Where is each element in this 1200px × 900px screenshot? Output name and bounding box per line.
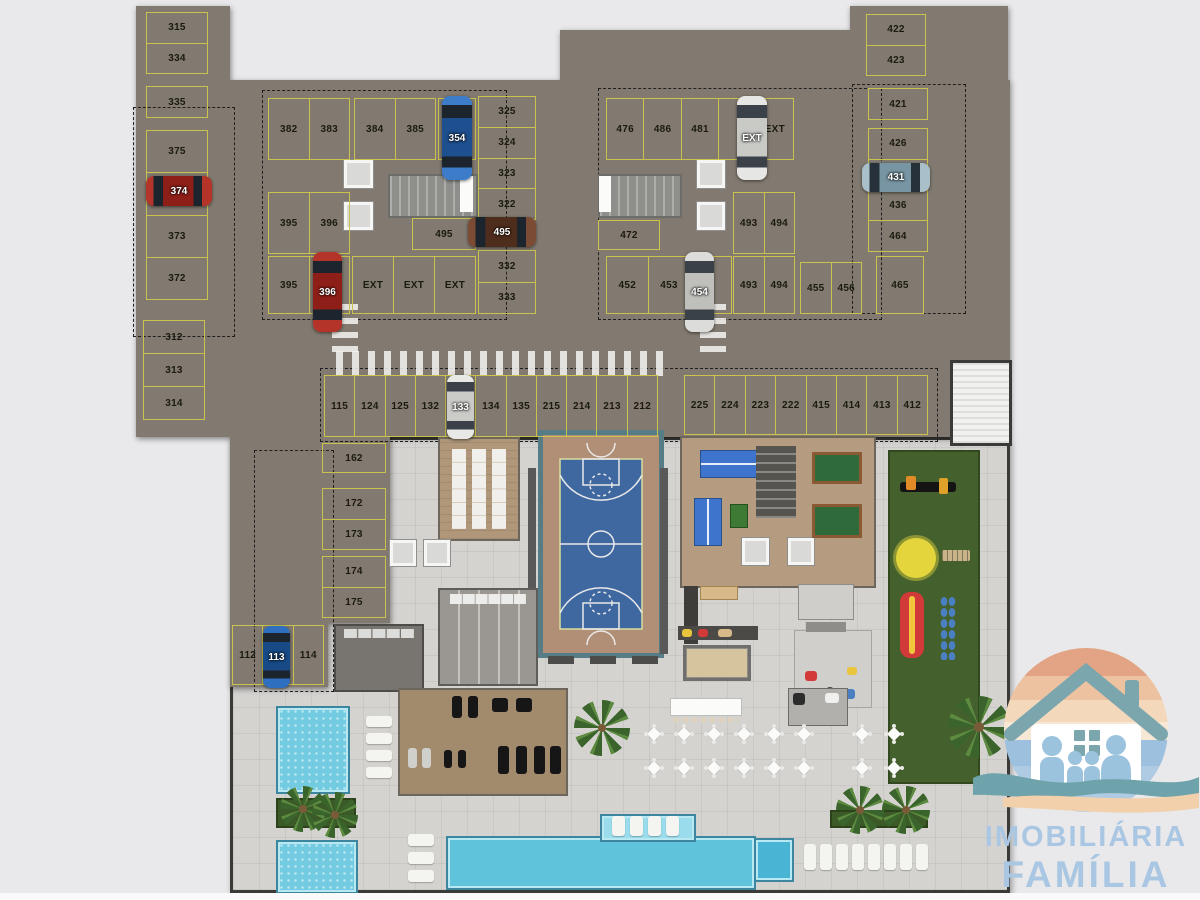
logo-graphic [973,646,1199,814]
floor-plan: 3153343353753743733723123133143823833843… [0,0,1200,900]
company-logo: IMOBILIÁRIA FAMÍLIA [972,646,1200,896]
car-374: 374 [146,176,212,206]
car-454: 454 [685,252,714,332]
car-431: 431 [862,163,930,192]
car-133: 133 [447,375,474,439]
bottom-margin [0,893,1200,900]
car-495: 495 [468,217,536,247]
car-354: 354 [442,96,472,180]
logo-text-line2: FAMÍLIA [972,854,1200,896]
car-113: 113 [263,626,290,688]
car-EXT: EXT [737,96,767,180]
logo-text-line1: IMOBILIÁRIA [972,821,1200,854]
car-396: 396 [313,252,342,332]
